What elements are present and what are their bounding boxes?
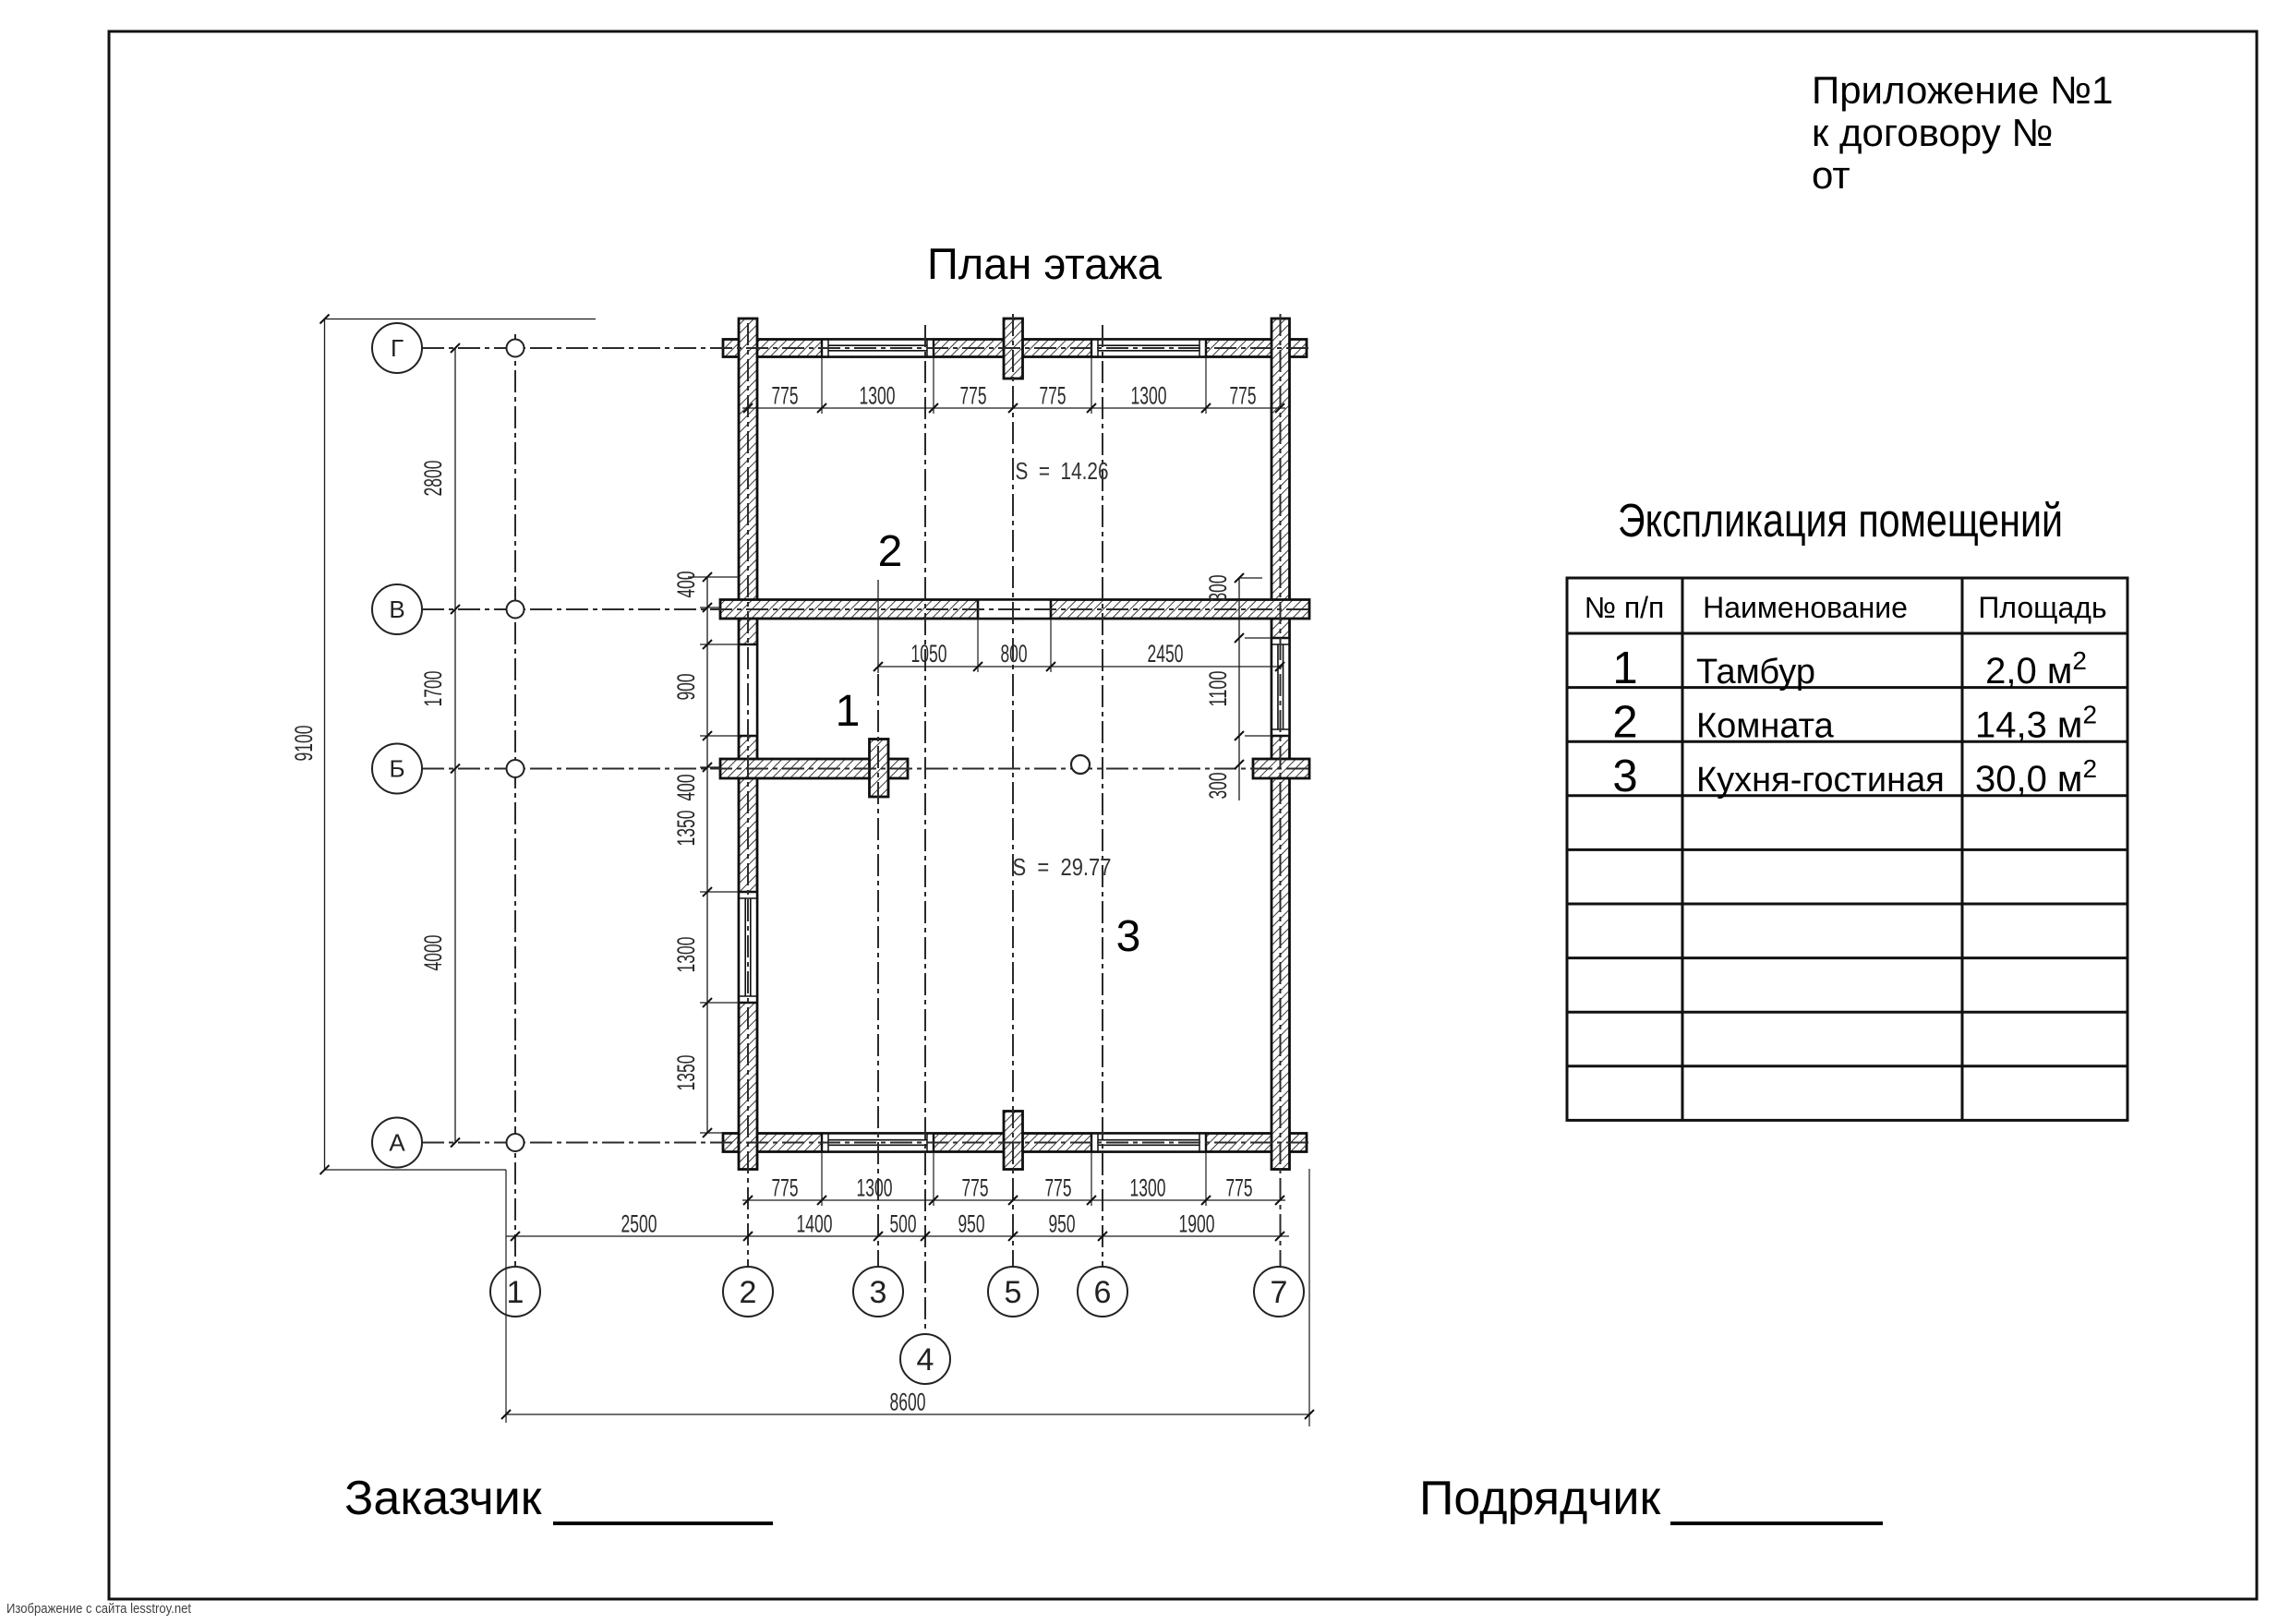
svg-text:Подрядчик: Подрядчик <box>1419 1472 1660 1525</box>
svg-text:Тамбур: Тамбур <box>1696 653 1815 692</box>
svg-text:Экспликация помещений: Экспликация помещений <box>1618 494 2063 547</box>
svg-text:300: 300 <box>1204 575 1232 602</box>
svg-text:Площадь: Площадь <box>1978 591 2106 624</box>
svg-text:Б: Б <box>389 755 404 783</box>
svg-text:800: 800 <box>1001 640 1028 668</box>
svg-text:1700: 1700 <box>419 671 447 707</box>
svg-text:1300: 1300 <box>1131 382 1167 410</box>
svg-text:1400: 1400 <box>797 1210 833 1238</box>
svg-text:8600: 8600 <box>890 1389 926 1416</box>
svg-text:775: 775 <box>1226 1174 1253 1202</box>
svg-text:№ п/п: № п/п <box>1585 591 1665 624</box>
svg-text:775: 775 <box>1230 382 1257 410</box>
svg-text:4000: 4000 <box>419 935 447 971</box>
svg-text:3: 3 <box>1612 752 1637 801</box>
svg-text:S = 29.77: S = 29.77 <box>1013 853 1112 881</box>
svg-text:Заказчик: Заказчик <box>344 1472 542 1525</box>
svg-text:400: 400 <box>672 571 700 598</box>
svg-text:1: 1 <box>836 687 861 736</box>
svg-text:9100: 9100 <box>290 726 318 762</box>
svg-text:1: 1 <box>1612 644 1637 693</box>
svg-text:Комната: Комната <box>1696 707 1835 746</box>
svg-text:Наименование: Наименование <box>1703 591 1908 624</box>
svg-text:950: 950 <box>1049 1210 1076 1238</box>
svg-text:1050: 1050 <box>911 640 947 668</box>
svg-text:1: 1 <box>507 1275 524 1310</box>
svg-text:950: 950 <box>958 1210 985 1238</box>
svg-text:1350: 1350 <box>672 1055 700 1091</box>
svg-text:План этажа: План этажа <box>927 239 1163 288</box>
svg-text:1900: 1900 <box>1179 1210 1215 1238</box>
svg-text:775: 775 <box>960 382 987 410</box>
svg-text:1350: 1350 <box>672 811 700 847</box>
svg-text:2500: 2500 <box>621 1210 657 1238</box>
svg-text:400: 400 <box>672 775 700 801</box>
svg-text:Изображение с сайта lesstroy.n: Изображение с сайта lesstroy.net <box>6 1601 192 1617</box>
svg-text:6: 6 <box>1094 1275 1112 1310</box>
svg-text:30,0 м2: 30,0 м2 <box>1975 754 2097 800</box>
svg-text:900: 900 <box>672 674 700 701</box>
svg-text:3: 3 <box>870 1275 887 1310</box>
svg-text:300: 300 <box>1204 773 1232 800</box>
svg-text:1300: 1300 <box>857 1174 893 1202</box>
svg-text:2: 2 <box>740 1275 757 1310</box>
svg-text:S = 14.26: S = 14.26 <box>1016 457 1109 485</box>
svg-text:5: 5 <box>1005 1275 1022 1310</box>
svg-text:А: А <box>389 1129 405 1157</box>
svg-text:2: 2 <box>1612 698 1637 748</box>
svg-text:7: 7 <box>1271 1275 1288 1310</box>
svg-text:Приложение №1: Приложение №1 <box>1812 68 2113 112</box>
svg-text:Кухня-гостиная: Кухня-гостиная <box>1696 761 1945 800</box>
svg-text:4: 4 <box>917 1342 934 1377</box>
svg-text:В: В <box>389 595 404 623</box>
svg-text:Г: Г <box>391 334 404 362</box>
svg-text:2: 2 <box>878 527 903 576</box>
svg-text:14,3 м2: 14,3 м2 <box>1975 701 2097 746</box>
svg-text:775: 775 <box>772 1174 799 1202</box>
svg-text:775: 775 <box>1040 382 1067 410</box>
svg-text:1300: 1300 <box>672 937 700 973</box>
svg-text:к договору №: к договору № <box>1812 111 2053 154</box>
svg-text:1100: 1100 <box>1204 671 1232 707</box>
svg-text:775: 775 <box>1045 1174 1072 1202</box>
svg-text:775: 775 <box>772 382 799 410</box>
svg-text:2450: 2450 <box>1148 640 1184 668</box>
svg-text:1300: 1300 <box>860 382 896 410</box>
svg-text:2,0 м2: 2,0 м2 <box>1985 646 2087 692</box>
svg-text:775: 775 <box>962 1174 989 1202</box>
svg-text:1300: 1300 <box>1130 1174 1166 1202</box>
svg-text:3: 3 <box>1116 912 1141 961</box>
svg-text:2800: 2800 <box>419 461 447 497</box>
svg-text:от: от <box>1812 153 1850 197</box>
svg-text:500: 500 <box>890 1210 917 1238</box>
